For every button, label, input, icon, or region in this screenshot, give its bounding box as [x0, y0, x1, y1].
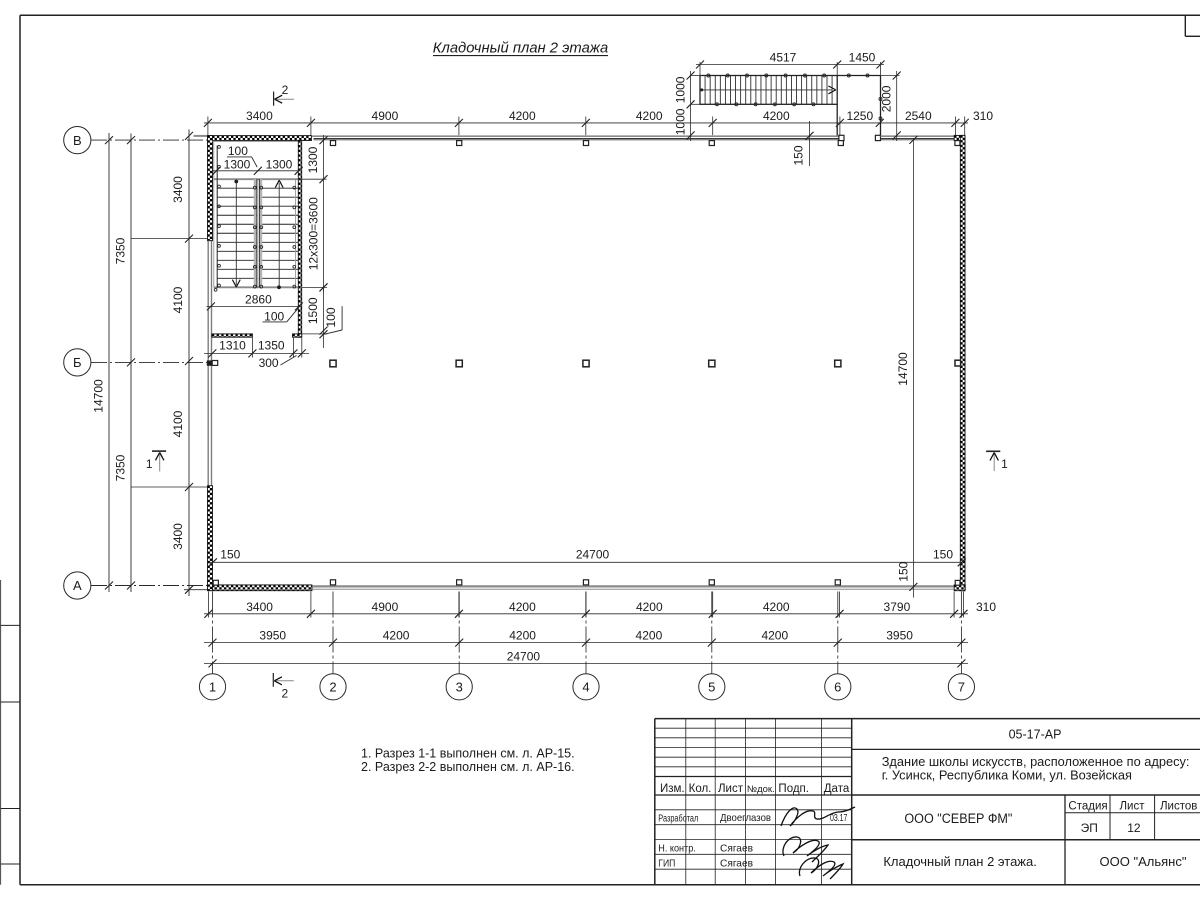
svg-text:№док.: №док. [747, 784, 775, 795]
svg-text:2: 2 [329, 679, 336, 694]
svg-text:2. Разрез 2-2 выполнен см. л.: 2. Разрез 2-2 выполнен см. л. АР-16. [361, 760, 575, 774]
svg-text:4200: 4200 [509, 629, 536, 643]
svg-text:2860: 2860 [245, 293, 272, 307]
svg-text:100: 100 [264, 309, 284, 323]
svg-text:4200: 4200 [763, 109, 790, 123]
svg-text:100: 100 [228, 144, 248, 158]
svg-text:ООО "СЕВЕР ФМ": ООО "СЕВЕР ФМ" [904, 811, 1012, 826]
svg-text:2: 2 [281, 686, 288, 700]
svg-text:7350: 7350 [114, 454, 128, 481]
svg-text:100: 100 [324, 307, 338, 327]
svg-text:Б: Б [73, 355, 82, 370]
svg-text:4200: 4200 [761, 629, 788, 643]
svg-text:1. Разрез 1-1 выполнен см. л.: 1. Разрез 1-1 выполнен см. л. АР-15. [361, 747, 575, 761]
svg-text:14700: 14700 [896, 352, 910, 386]
svg-text:Н. контр.: Н. контр. [658, 843, 696, 854]
svg-text:6: 6 [834, 679, 841, 694]
svg-text:1: 1 [1001, 457, 1008, 471]
svg-text:Изм.: Изм. [660, 783, 685, 795]
svg-text:1000: 1000 [673, 76, 687, 103]
svg-text:Листов: Листов [1160, 801, 1197, 813]
svg-text:1300: 1300 [306, 146, 320, 173]
svg-text:ООО "Альянс": ООО "Альянс" [1100, 854, 1187, 869]
svg-text:4200: 4200 [636, 629, 663, 643]
svg-text:1: 1 [209, 679, 216, 694]
svg-text:310: 310 [973, 109, 993, 123]
svg-text:Сягаев: Сягаев [720, 842, 753, 854]
svg-text:4200: 4200 [636, 109, 663, 123]
svg-text:А: А [73, 578, 82, 593]
svg-text:4900: 4900 [372, 600, 399, 614]
svg-text:4200: 4200 [509, 109, 536, 123]
svg-text:3: 3 [456, 679, 463, 694]
svg-text:1000: 1000 [673, 108, 687, 135]
svg-text:ГИП: ГИП [658, 858, 675, 869]
svg-text:4100: 4100 [171, 410, 185, 437]
svg-text:Сягаев: Сягаев [720, 857, 753, 869]
svg-text:1350: 1350 [258, 338, 285, 352]
svg-text:150: 150 [933, 548, 953, 562]
svg-text:2000: 2000 [880, 85, 894, 112]
svg-text:1310: 1310 [219, 338, 246, 352]
svg-text:4: 4 [582, 679, 589, 694]
svg-text:Подп.: Подп. [778, 783, 809, 795]
svg-text:Дата: Дата [824, 783, 850, 795]
svg-text:Кол.: Кол. [689, 783, 712, 795]
svg-text:14700: 14700 [92, 379, 106, 413]
svg-text:4900: 4900 [372, 109, 399, 123]
svg-text:05-17-АР: 05-17-АР [1009, 728, 1062, 742]
svg-text:5: 5 [708, 679, 715, 694]
svg-text:1300: 1300 [266, 157, 293, 171]
svg-text:7350: 7350 [114, 237, 128, 264]
svg-text:2: 2 [282, 83, 289, 97]
svg-text:3950: 3950 [886, 629, 913, 643]
svg-text:Лист: Лист [718, 783, 744, 795]
svg-text:310: 310 [976, 600, 996, 614]
svg-text:3950: 3950 [259, 629, 286, 643]
svg-text:4200: 4200 [763, 600, 790, 614]
svg-text:3790: 3790 [884, 600, 911, 614]
svg-text:150: 150 [791, 145, 805, 165]
svg-text:3400: 3400 [171, 176, 185, 203]
svg-text:4200: 4200 [636, 600, 663, 614]
svg-text:150: 150 [220, 548, 240, 562]
svg-text:24700: 24700 [507, 649, 541, 663]
svg-text:3400: 3400 [246, 600, 273, 614]
svg-text:Разработал: Разработал [658, 814, 698, 825]
svg-text:4100: 4100 [171, 286, 185, 313]
svg-text:г. Усинск, Республика Коми, ул: г. Усинск, Республика Коми, ул. Возейска… [882, 768, 1132, 783]
svg-text:Двоеглазов: Двоеглазов [720, 812, 771, 824]
svg-text:ЭП: ЭП [1081, 821, 1098, 835]
svg-text:7: 7 [958, 679, 965, 694]
svg-text:1500: 1500 [306, 297, 320, 324]
svg-text:4200: 4200 [509, 600, 536, 614]
svg-text:4200: 4200 [383, 629, 410, 643]
svg-text:Кладочный план 2 этажа.: Кладочный план 2 этажа. [883, 854, 1037, 869]
svg-text:1: 1 [146, 457, 153, 471]
svg-text:2540: 2540 [905, 109, 932, 123]
svg-text:12: 12 [1127, 821, 1141, 835]
svg-text:Лист: Лист [1120, 801, 1146, 813]
svg-text:150: 150 [897, 561, 911, 581]
svg-text:12х300=3600: 12х300=3600 [307, 197, 321, 270]
svg-text:3400: 3400 [246, 109, 273, 123]
svg-text:Кладочный план 2 этажа: Кладочный план 2 этажа [433, 41, 608, 57]
svg-text:300: 300 [259, 356, 279, 370]
svg-text:1300: 1300 [224, 157, 251, 171]
svg-text:1450: 1450 [849, 50, 876, 64]
svg-text:24700: 24700 [576, 548, 610, 562]
svg-text:Стадия: Стадия [1068, 801, 1107, 813]
svg-text:3400: 3400 [171, 523, 185, 550]
svg-text:4517: 4517 [770, 50, 797, 64]
svg-text:03.17: 03.17 [830, 813, 848, 824]
svg-text:1250: 1250 [846, 109, 873, 123]
svg-text:В: В [73, 133, 82, 148]
